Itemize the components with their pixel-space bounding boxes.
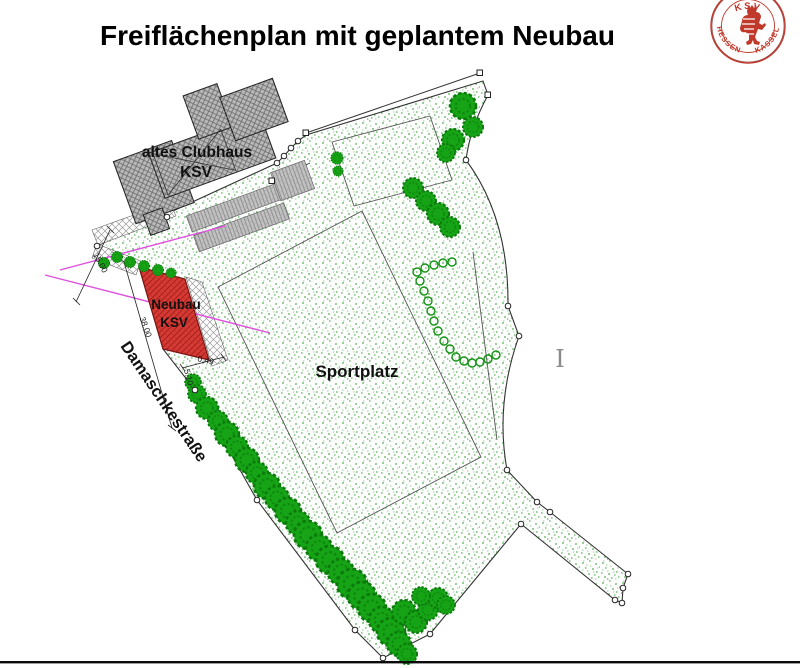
tree-icon (412, 587, 430, 605)
tree-icon (437, 144, 455, 162)
tree-icon (437, 596, 455, 614)
old-clubhouse-label-line1: altes Clubhaus (142, 144, 252, 161)
ksv-logo: KSV HESSEN KASSEL (711, 0, 785, 63)
shrub-icon (166, 268, 176, 278)
tree-icon (440, 217, 460, 237)
tree-icon (463, 117, 483, 137)
plan-sheet: altes Clubhaus KSV Neubau KSV Sportplatz… (0, 0, 800, 668)
shrub-icon (139, 261, 150, 272)
shrub-icon (112, 252, 123, 263)
cursor-artifact: I (555, 345, 564, 373)
dim-38: 38.00 (137, 315, 154, 339)
shrub-icon (153, 265, 164, 276)
new-building-label-line2: KSV (160, 315, 188, 330)
new-building-label-line1: Neubau (151, 297, 201, 312)
tree-icon (450, 93, 476, 119)
site-plan: altes Clubhaus KSV Neubau KSV Sportplatz… (0, 0, 800, 668)
shrub-icon (125, 257, 136, 268)
tree-icon (333, 166, 343, 176)
bottom-border-line (0, 661, 800, 663)
tree-icon (331, 152, 343, 164)
sports-field-label: Sportplatz (315, 362, 398, 381)
page-title: Freiflächenplan mit geplantem Neubau (0, 20, 715, 52)
old-clubhouse-label-line2: KSV (180, 164, 213, 181)
